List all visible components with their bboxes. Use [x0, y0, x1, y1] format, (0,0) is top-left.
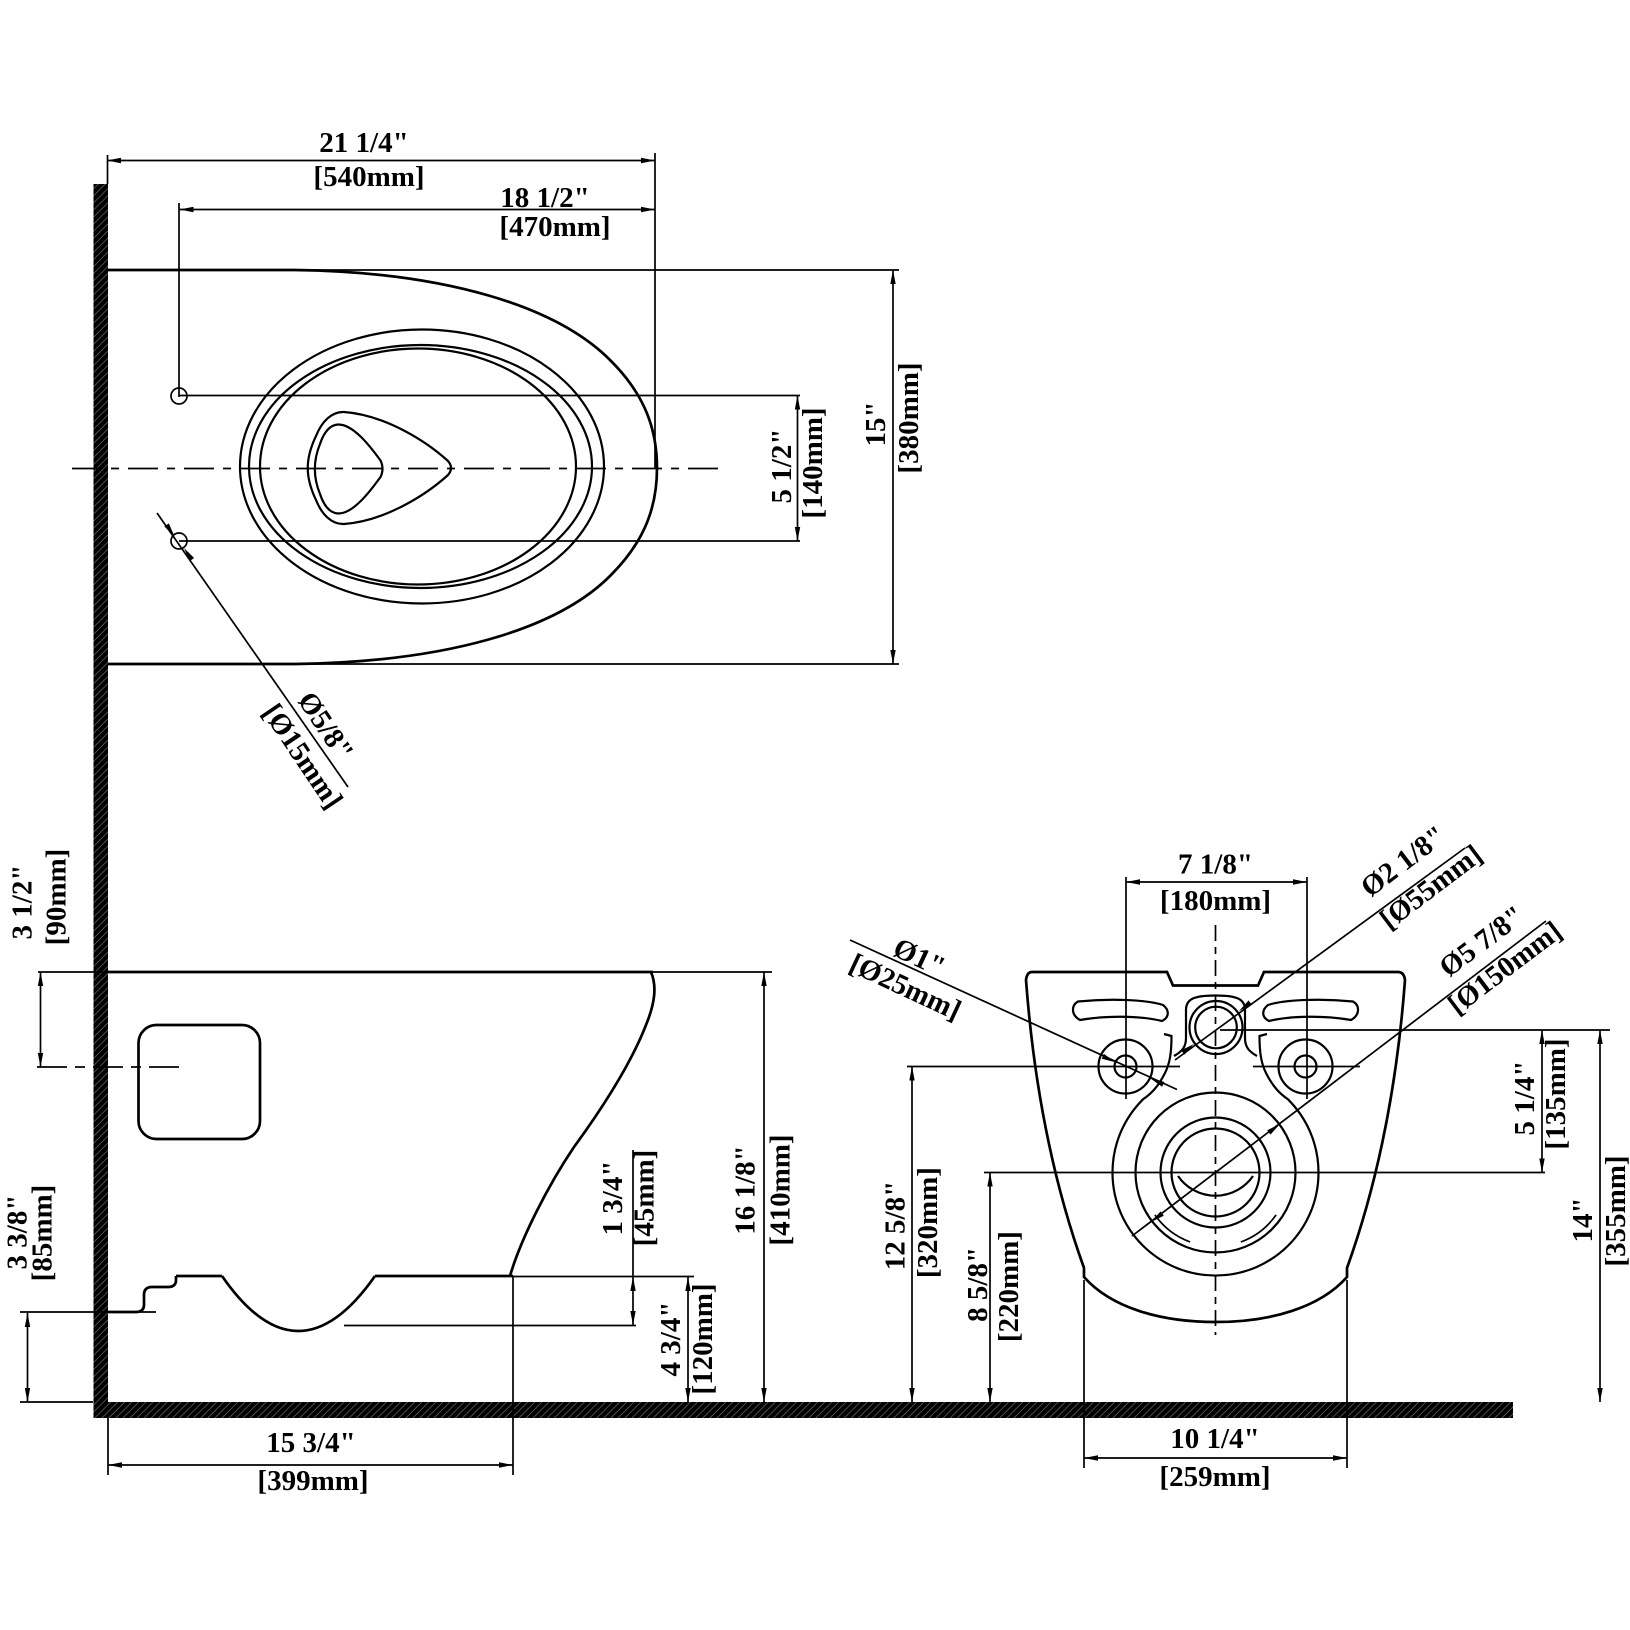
svg-text:[120mm]: [120mm]	[687, 1283, 719, 1394]
svg-text:16 1/8": 16 1/8"	[729, 1145, 761, 1234]
svg-text:1 3/4": 1 3/4"	[597, 1161, 629, 1236]
svg-text:5 1/4": 5 1/4"	[1509, 1061, 1541, 1136]
svg-text:[355mm]: [355mm]	[1600, 1155, 1630, 1266]
svg-text:[90mm]: [90mm]	[40, 849, 72, 946]
svg-text:18 1/2": 18 1/2"	[500, 182, 589, 214]
svg-text:[410mm]: [410mm]	[765, 1134, 797, 1245]
svg-text:10 1/4": 10 1/4"	[1170, 1423, 1259, 1455]
svg-text:[399mm]: [399mm]	[257, 1465, 368, 1497]
svg-text:12 5/8": 12 5/8"	[879, 1181, 911, 1270]
svg-text:4 3/4": 4 3/4"	[655, 1302, 687, 1377]
svg-text:[220mm]: [220mm]	[993, 1231, 1025, 1342]
svg-text:[320mm]: [320mm]	[912, 1167, 944, 1278]
svg-text:[140mm]: [140mm]	[797, 407, 829, 518]
svg-text:5 1/2": 5 1/2"	[766, 429, 798, 504]
svg-text:7 1/8": 7 1/8"	[1178, 848, 1253, 880]
svg-text:[540mm]: [540mm]	[313, 161, 424, 193]
svg-text:[135mm]: [135mm]	[1540, 1038, 1572, 1149]
svg-text:21 1/4": 21 1/4"	[319, 127, 408, 159]
svg-text:15": 15"	[860, 401, 892, 446]
svg-text:[259mm]: [259mm]	[1159, 1461, 1270, 1493]
svg-text:[180mm]: [180mm]	[1160, 885, 1271, 917]
svg-text:14": 14"	[1567, 1197, 1599, 1242]
svg-text:3 1/2": 3 1/2"	[6, 865, 38, 940]
svg-text:[85mm]: [85mm]	[26, 1185, 58, 1282]
svg-text:15 3/4": 15 3/4"	[266, 1427, 355, 1459]
svg-text:[380mm]: [380mm]	[893, 362, 925, 473]
svg-text:8 5/8": 8 5/8"	[962, 1247, 994, 1322]
svg-text:[45mm]: [45mm]	[628, 1150, 660, 1247]
svg-text:[470mm]: [470mm]	[499, 211, 610, 243]
